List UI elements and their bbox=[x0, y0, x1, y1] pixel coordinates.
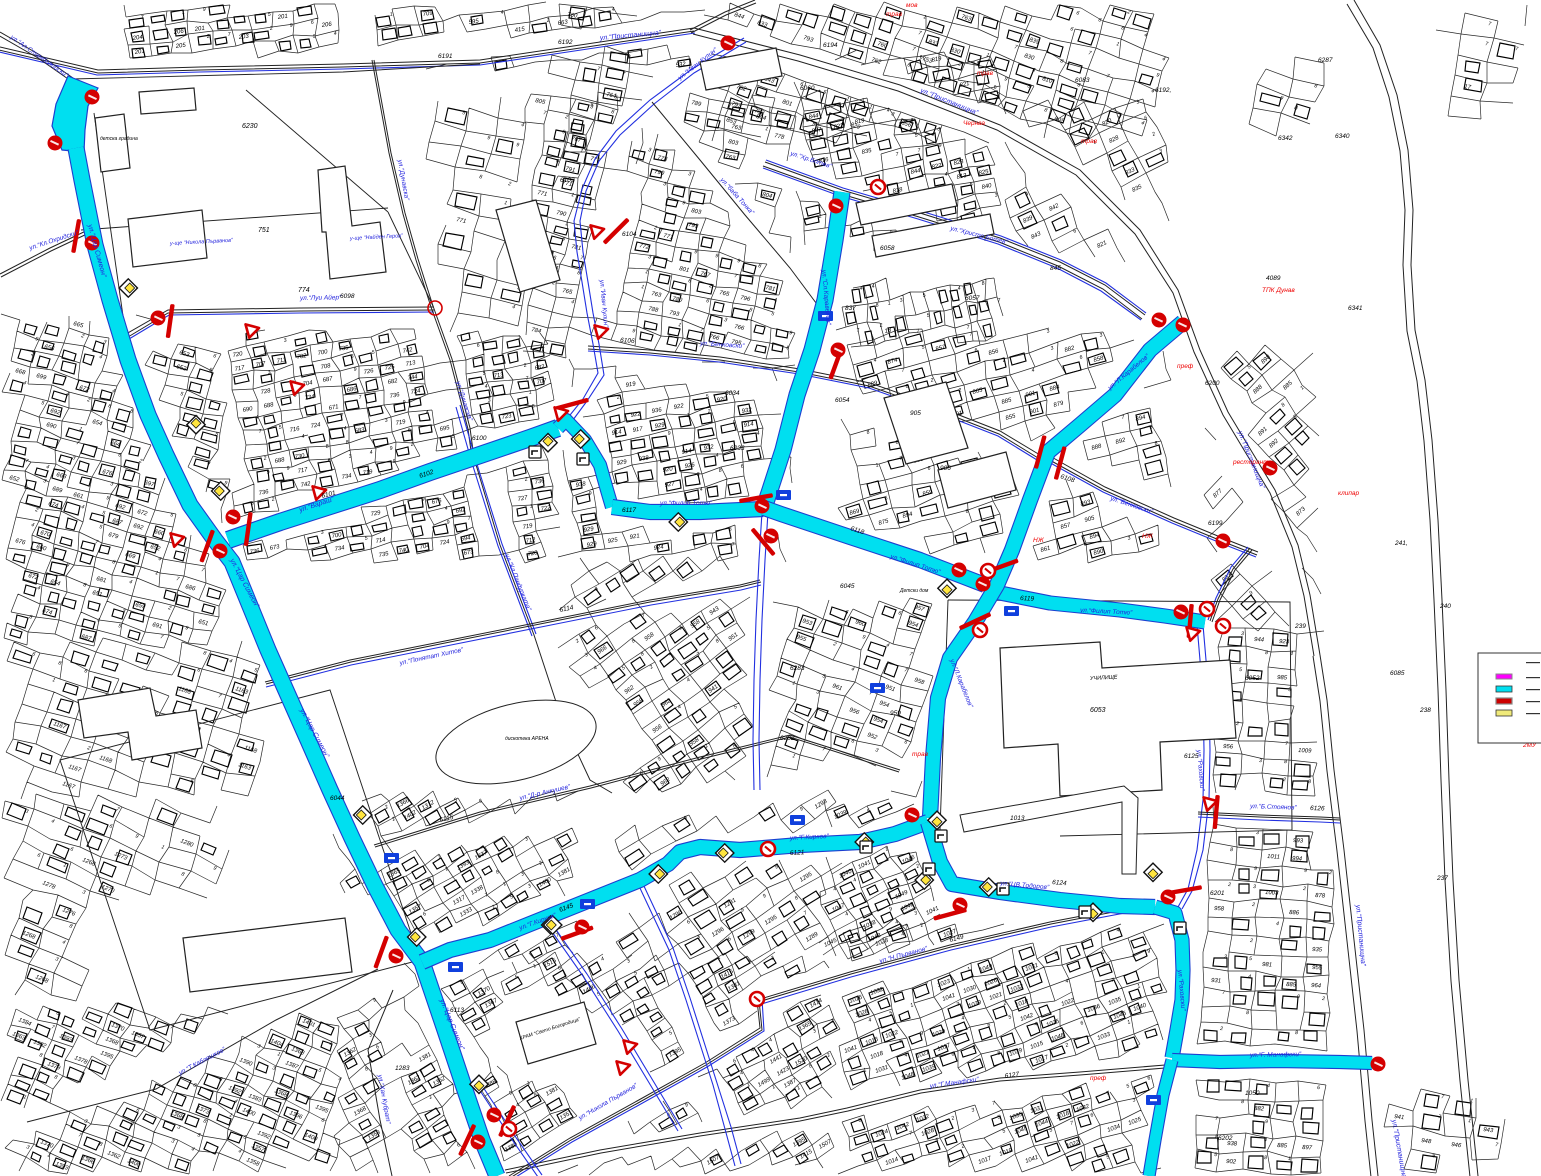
svg-text:902: 902 bbox=[1226, 1159, 1237, 1166]
svg-text:трав: трав bbox=[977, 70, 994, 77]
svg-text:6085: 6085 bbox=[1390, 670, 1405, 677]
svg-text:2: 2 bbox=[1227, 882, 1231, 888]
svg-text:6202: 6202 bbox=[1218, 1135, 1233, 1142]
svg-text:2: 2 bbox=[1251, 902, 1255, 908]
svg-text:6034: 6034 bbox=[725, 390, 740, 397]
svg-text:преф: преф bbox=[1177, 363, 1194, 370]
svg-text:4: 4 bbox=[1276, 921, 1279, 927]
svg-text:детска градина: детска градина bbox=[100, 136, 138, 142]
svg-text:1011: 1011 bbox=[1267, 854, 1280, 861]
svg-text:3: 3 bbox=[1224, 954, 1227, 960]
svg-text:6103: 6103 bbox=[560, 177, 575, 184]
svg-text:878: 878 bbox=[1315, 893, 1326, 900]
svg-text:ул.“Г. Манафски”: ул.“Г. Манафски” bbox=[1249, 1051, 1302, 1059]
svg-text:958: 958 bbox=[1214, 906, 1225, 913]
svg-text:6192: 6192 bbox=[558, 39, 573, 46]
svg-text:944: 944 bbox=[1254, 637, 1265, 644]
svg-text:981: 981 bbox=[1262, 962, 1272, 969]
svg-text:4: 4 bbox=[1264, 1137, 1267, 1143]
svg-text:959: 959 bbox=[890, 710, 901, 717]
svg-text:мов: мов bbox=[906, 2, 918, 9]
svg-text:6341: 6341 bbox=[1348, 305, 1363, 312]
svg-text:9: 9 bbox=[1254, 866, 1257, 872]
svg-text:6192,: 6192, bbox=[1155, 87, 1171, 94]
svg-text:931: 931 bbox=[1211, 978, 1221, 985]
svg-text:6098: 6098 bbox=[340, 293, 355, 300]
svg-text:6342: 6342 bbox=[1278, 135, 1293, 142]
svg-text:885: 885 bbox=[1277, 1143, 1288, 1150]
svg-text:3: 3 bbox=[1259, 758, 1262, 764]
svg-text:3: 3 bbox=[1253, 884, 1256, 890]
svg-text:237: 237 bbox=[1436, 875, 1448, 882]
svg-text:956: 956 bbox=[1223, 744, 1234, 751]
svg-text:6060: 6060 bbox=[800, 85, 815, 92]
svg-text:6057: 6057 bbox=[965, 295, 980, 302]
svg-text:751: 751 bbox=[258, 227, 270, 234]
svg-text:6033: 6033 bbox=[730, 445, 745, 452]
svg-text:6283: 6283 bbox=[790, 665, 805, 672]
svg-text:6191: 6191 bbox=[438, 53, 453, 60]
svg-text:882: 882 bbox=[1254, 1106, 1265, 1113]
svg-text:2: 2 bbox=[1302, 886, 1306, 892]
svg-text:1283: 1283 bbox=[395, 1065, 410, 1072]
svg-text:НЖ: НЖ bbox=[1142, 533, 1154, 540]
svg-text:6058: 6058 bbox=[880, 245, 895, 252]
svg-text:1003: 1003 bbox=[1265, 890, 1279, 897]
svg-text:5: 5 bbox=[1239, 667, 1242, 673]
svg-text:преф: преф bbox=[1090, 1075, 1107, 1082]
svg-text:239: 239 bbox=[1294, 623, 1306, 630]
svg-text:6121: 6121 bbox=[790, 849, 805, 857]
svg-text:6100: 6100 bbox=[472, 435, 487, 442]
svg-text:985: 985 bbox=[1277, 675, 1288, 682]
svg-text:993: 993 bbox=[1293, 838, 1304, 845]
svg-text:845: 845 bbox=[1050, 265, 1061, 272]
svg-text:4: 4 bbox=[1267, 1083, 1270, 1089]
svg-text:6126: 6126 bbox=[1310, 805, 1325, 813]
svg-text:трав: трав bbox=[1081, 138, 1098, 145]
svg-text:8: 8 bbox=[1295, 1030, 1298, 1036]
svg-text:4: 4 bbox=[1248, 974, 1251, 980]
svg-text:6052: 6052 bbox=[1245, 675, 1260, 682]
svg-text:1009: 1009 bbox=[1298, 748, 1312, 755]
svg-text:6053: 6053 bbox=[1090, 707, 1106, 714]
svg-text:НЖ: НЖ bbox=[1033, 537, 1045, 544]
svg-text:6194: 6194 bbox=[823, 42, 838, 49]
svg-text:9: 9 bbox=[1297, 994, 1300, 1000]
svg-text:6124: 6124 bbox=[1052, 879, 1067, 887]
svg-text:6119: 6119 bbox=[1020, 595, 1035, 603]
svg-text:2: 2 bbox=[1249, 938, 1253, 944]
svg-text:238: 238 bbox=[1419, 707, 1431, 714]
svg-text:Детски дом: Детски дом bbox=[899, 588, 929, 594]
svg-text:923: 923 bbox=[1279, 639, 1290, 646]
svg-text:дискотека АРЕНА: дискотека АРЕНА bbox=[505, 736, 549, 742]
svg-text:8: 8 bbox=[1241, 1099, 1244, 1105]
svg-text:1013: 1013 bbox=[1010, 815, 1025, 822]
svg-text:886: 886 bbox=[1289, 910, 1300, 917]
svg-text:964: 964 bbox=[1311, 983, 1322, 990]
svg-text:2: 2 bbox=[1321, 996, 1325, 1002]
svg-text:6287: 6287 bbox=[1318, 57, 1333, 64]
svg-text:трав: трав bbox=[912, 751, 929, 758]
svg-text:2: 2 bbox=[1282, 777, 1286, 783]
svg-text:6045: 6045 bbox=[840, 583, 855, 590]
svg-text:6113: 6113 bbox=[450, 1007, 464, 1014]
svg-text:6200: 6200 bbox=[1205, 380, 1220, 387]
svg-text:ресторант: ресторант bbox=[1232, 459, 1269, 466]
svg-text:6262: 6262 bbox=[780, 735, 795, 742]
svg-text:клипар: клипар bbox=[1338, 490, 1360, 497]
svg-text:6044: 6044 bbox=[330, 795, 345, 802]
svg-text:935: 935 bbox=[1312, 947, 1323, 954]
svg-text:6106: 6106 bbox=[620, 337, 635, 345]
svg-text:897: 897 bbox=[1302, 1145, 1313, 1152]
svg-text:8: 8 bbox=[1264, 1155, 1267, 1161]
svg-text:трав: трав bbox=[886, 11, 903, 18]
svg-text:8: 8 bbox=[1246, 1010, 1249, 1016]
svg-text:994: 994 bbox=[1292, 856, 1303, 863]
svg-text:905: 905 bbox=[910, 410, 921, 417]
svg-text:6083: 6083 bbox=[1075, 77, 1090, 84]
svg-text:ТПК Дунав: ТПК Дунав bbox=[1262, 287, 1295, 294]
svg-text:3: 3 bbox=[1241, 631, 1244, 637]
svg-text:6201: 6201 bbox=[1210, 890, 1225, 897]
svg-text:885: 885 bbox=[1286, 982, 1297, 989]
svg-text:774: 774 bbox=[298, 287, 310, 294]
svg-text:241,: 241, bbox=[1394, 540, 1408, 547]
svg-text:8: 8 bbox=[1308, 779, 1311, 785]
svg-text:ул.“Луи Айер”: ул.“Луи Айер” bbox=[299, 293, 342, 302]
svg-text:240: 240 bbox=[1439, 603, 1451, 610]
svg-text:8: 8 bbox=[1230, 847, 1233, 853]
svg-text:6104: 6104 bbox=[622, 231, 637, 238]
svg-text:8: 8 bbox=[1284, 759, 1287, 765]
svg-text:6230: 6230 bbox=[242, 123, 258, 130]
svg-text:Чернва: Чернва bbox=[963, 120, 985, 127]
svg-text:955: 955 bbox=[1312, 965, 1323, 972]
svg-text:2: 2 bbox=[1219, 1026, 1223, 1032]
svg-text:6340: 6340 bbox=[1335, 133, 1350, 140]
svg-text:9: 9 bbox=[1304, 868, 1307, 874]
svg-text:5: 5 bbox=[1214, 1152, 1217, 1158]
svg-text:ул.“Филип Тотю”: ул.“Филип Тотю” bbox=[659, 500, 713, 507]
svg-text:6117: 6117 bbox=[622, 507, 636, 514]
svg-text:8: 8 bbox=[1265, 650, 1268, 656]
svg-text:6054: 6054 bbox=[835, 397, 850, 404]
svg-text:906: 906 bbox=[940, 465, 951, 472]
svg-text:837: 837 bbox=[845, 305, 856, 312]
svg-text:6199: 6199 bbox=[1208, 520, 1223, 527]
svg-text:1050: 1050 bbox=[1245, 1090, 1260, 1097]
svg-text:1: 1 bbox=[1288, 1156, 1291, 1162]
svg-text:2: 2 bbox=[1328, 870, 1332, 876]
svg-text:6125: 6125 bbox=[1184, 753, 1199, 760]
svg-text:9: 9 bbox=[1265, 1119, 1268, 1125]
svg-text:5: 5 bbox=[1249, 956, 1252, 962]
svg-text:6: 6 bbox=[1317, 1085, 1320, 1091]
svg-text:4089: 4089 bbox=[1266, 275, 1281, 282]
